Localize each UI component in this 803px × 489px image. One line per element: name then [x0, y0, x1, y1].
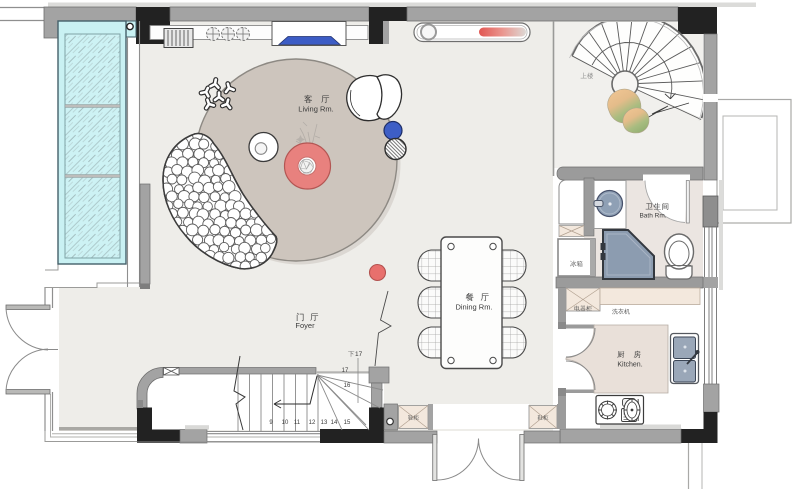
- svg-text:Dining Rm.: Dining Rm.: [455, 303, 492, 312]
- svg-text:Living Rm.: Living Rm.: [298, 105, 333, 114]
- svg-text:14: 14: [331, 420, 338, 426]
- svg-text:Bath Rm.: Bath Rm.: [639, 213, 666, 220]
- svg-text:12: 12: [309, 420, 316, 426]
- svg-text:17: 17: [342, 368, 349, 374]
- svg-text:Kitchen.: Kitchen.: [617, 362, 642, 369]
- svg-text:10: 10: [282, 420, 289, 426]
- svg-text:17: 17: [355, 351, 363, 358]
- svg-text:16: 16: [344, 383, 351, 389]
- svg-text:11: 11: [294, 420, 301, 426]
- svg-text:15: 15: [344, 420, 351, 426]
- svg-text:Foyer: Foyer: [295, 321, 315, 330]
- svg-text:13: 13: [321, 420, 328, 426]
